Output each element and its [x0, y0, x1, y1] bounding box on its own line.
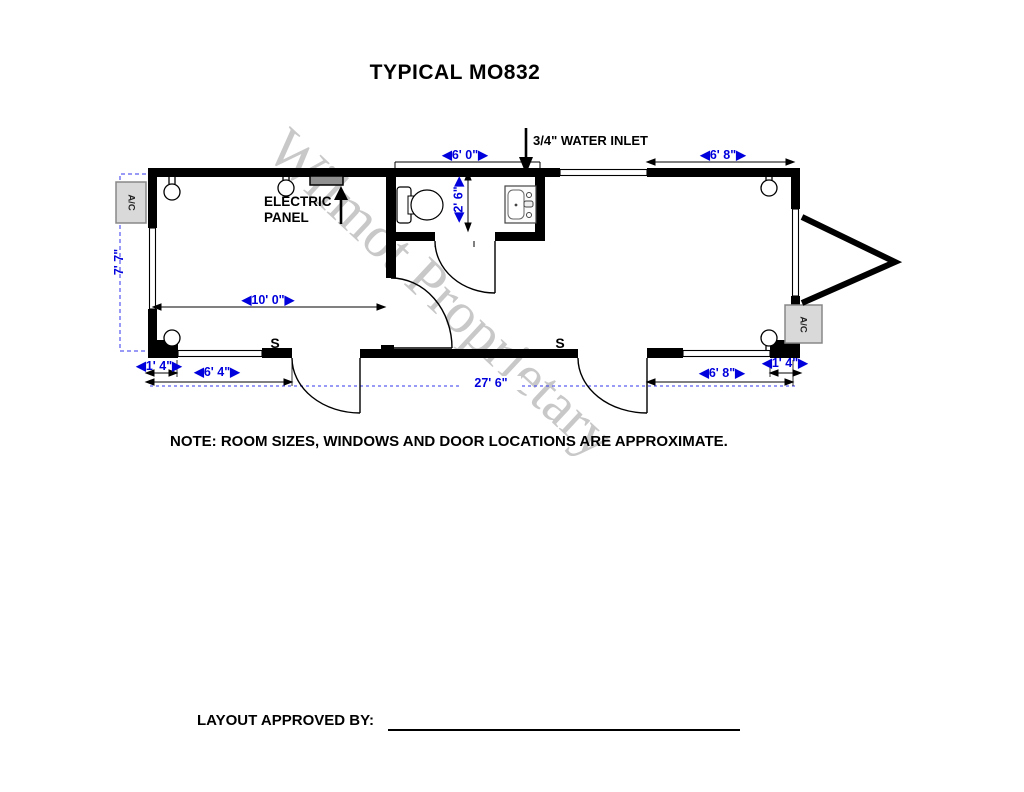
- dim-bottom-right-offset: ◀1' 4"▶: [750, 355, 820, 370]
- door-bathroom: [435, 241, 495, 293]
- water-inlet-label: 3/4" WATER INLET: [533, 133, 648, 148]
- dim-bath-depth: ◀2' 6"▶: [451, 165, 466, 235]
- signature-line: [388, 729, 740, 731]
- page-title: TYPICAL MO832: [305, 61, 605, 85]
- light-fixture: [164, 176, 180, 200]
- dim-left-room-width: ◀10' 0"▶: [223, 292, 313, 307]
- floor-plan-page: Wilmot Proprietary: [0, 0, 1024, 792]
- switch-label-left: S: [267, 335, 283, 351]
- window-right: [793, 209, 799, 296]
- dim-left-height: 7' 7": [112, 227, 126, 297]
- approval-label: LAYOUT APPROVED BY:: [197, 712, 374, 729]
- window-left: [150, 228, 156, 309]
- sink: [505, 186, 536, 223]
- floor-plan-drawing: [0, 0, 1024, 792]
- electric-panel-arrow-icon: [334, 186, 348, 200]
- electric-panel-label-line1: ELECTRIC: [264, 194, 332, 210]
- trailer-hitch: [802, 217, 895, 303]
- ac-label-left: A/C: [116, 182, 146, 223]
- ac-label-right: A/C: [785, 305, 822, 343]
- window-top: [560, 170, 647, 176]
- note-text: NOTE: ROOM SIZES, WINDOWS AND DOOR LOCAT…: [170, 433, 728, 450]
- switch-label-right: S: [552, 335, 568, 351]
- ac-label-left-text: A/C: [126, 194, 137, 210]
- dim-bath-width: ◀6' 0"▶: [425, 147, 505, 162]
- door-interior: [391, 278, 452, 348]
- ac-label-right-text: A/C: [798, 316, 809, 332]
- electric-panel-label-line2: PANEL: [264, 210, 332, 226]
- exterior-walls: [148, 168, 800, 358]
- water-inlet-arrow-icon: [519, 128, 533, 174]
- light-fixtures: [164, 176, 777, 350]
- dim-overall-length: 27' 6": [461, 376, 521, 390]
- window-bottom-left: [178, 351, 262, 357]
- dim-bottom-left-span: ◀6' 4"▶: [182, 364, 252, 379]
- electric-panel-label: ELECTRIC PANEL: [264, 194, 332, 226]
- light-fixture: [761, 176, 777, 196]
- toilet: [397, 187, 443, 223]
- windows: [150, 170, 799, 357]
- light-fixture: [278, 176, 294, 196]
- dim-top-right-span: ◀6' 8"▶: [683, 147, 763, 162]
